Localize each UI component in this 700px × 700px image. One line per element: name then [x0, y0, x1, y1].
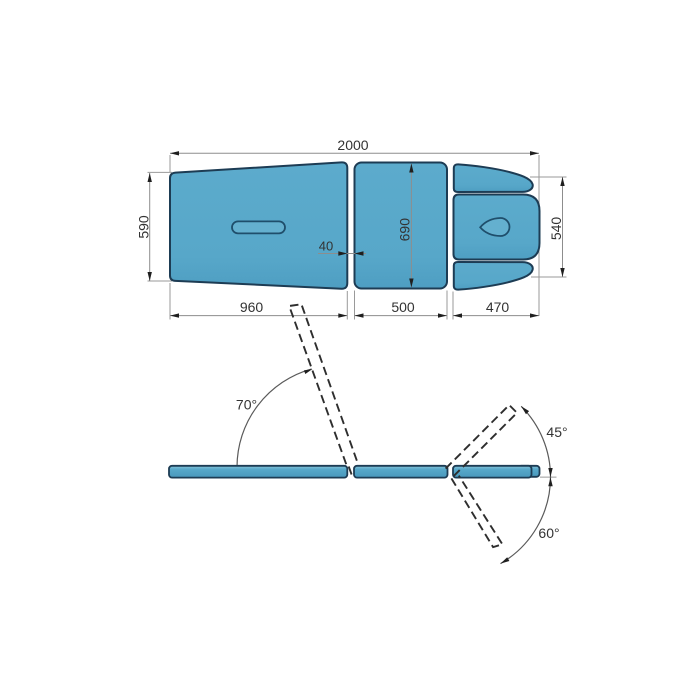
svg-text:590: 590	[136, 215, 152, 239]
svg-text:690: 690	[397, 218, 413, 242]
svg-text:40: 40	[319, 239, 333, 254]
svg-text:60°: 60°	[538, 525, 559, 541]
svg-text:70°: 70°	[236, 397, 257, 413]
svg-text:45°: 45°	[546, 424, 567, 440]
svg-text:470: 470	[486, 299, 510, 315]
svg-text:500: 500	[391, 299, 415, 315]
svg-text:540: 540	[548, 217, 564, 241]
svg-text:960: 960	[240, 299, 264, 315]
svg-text:2000: 2000	[337, 137, 368, 153]
